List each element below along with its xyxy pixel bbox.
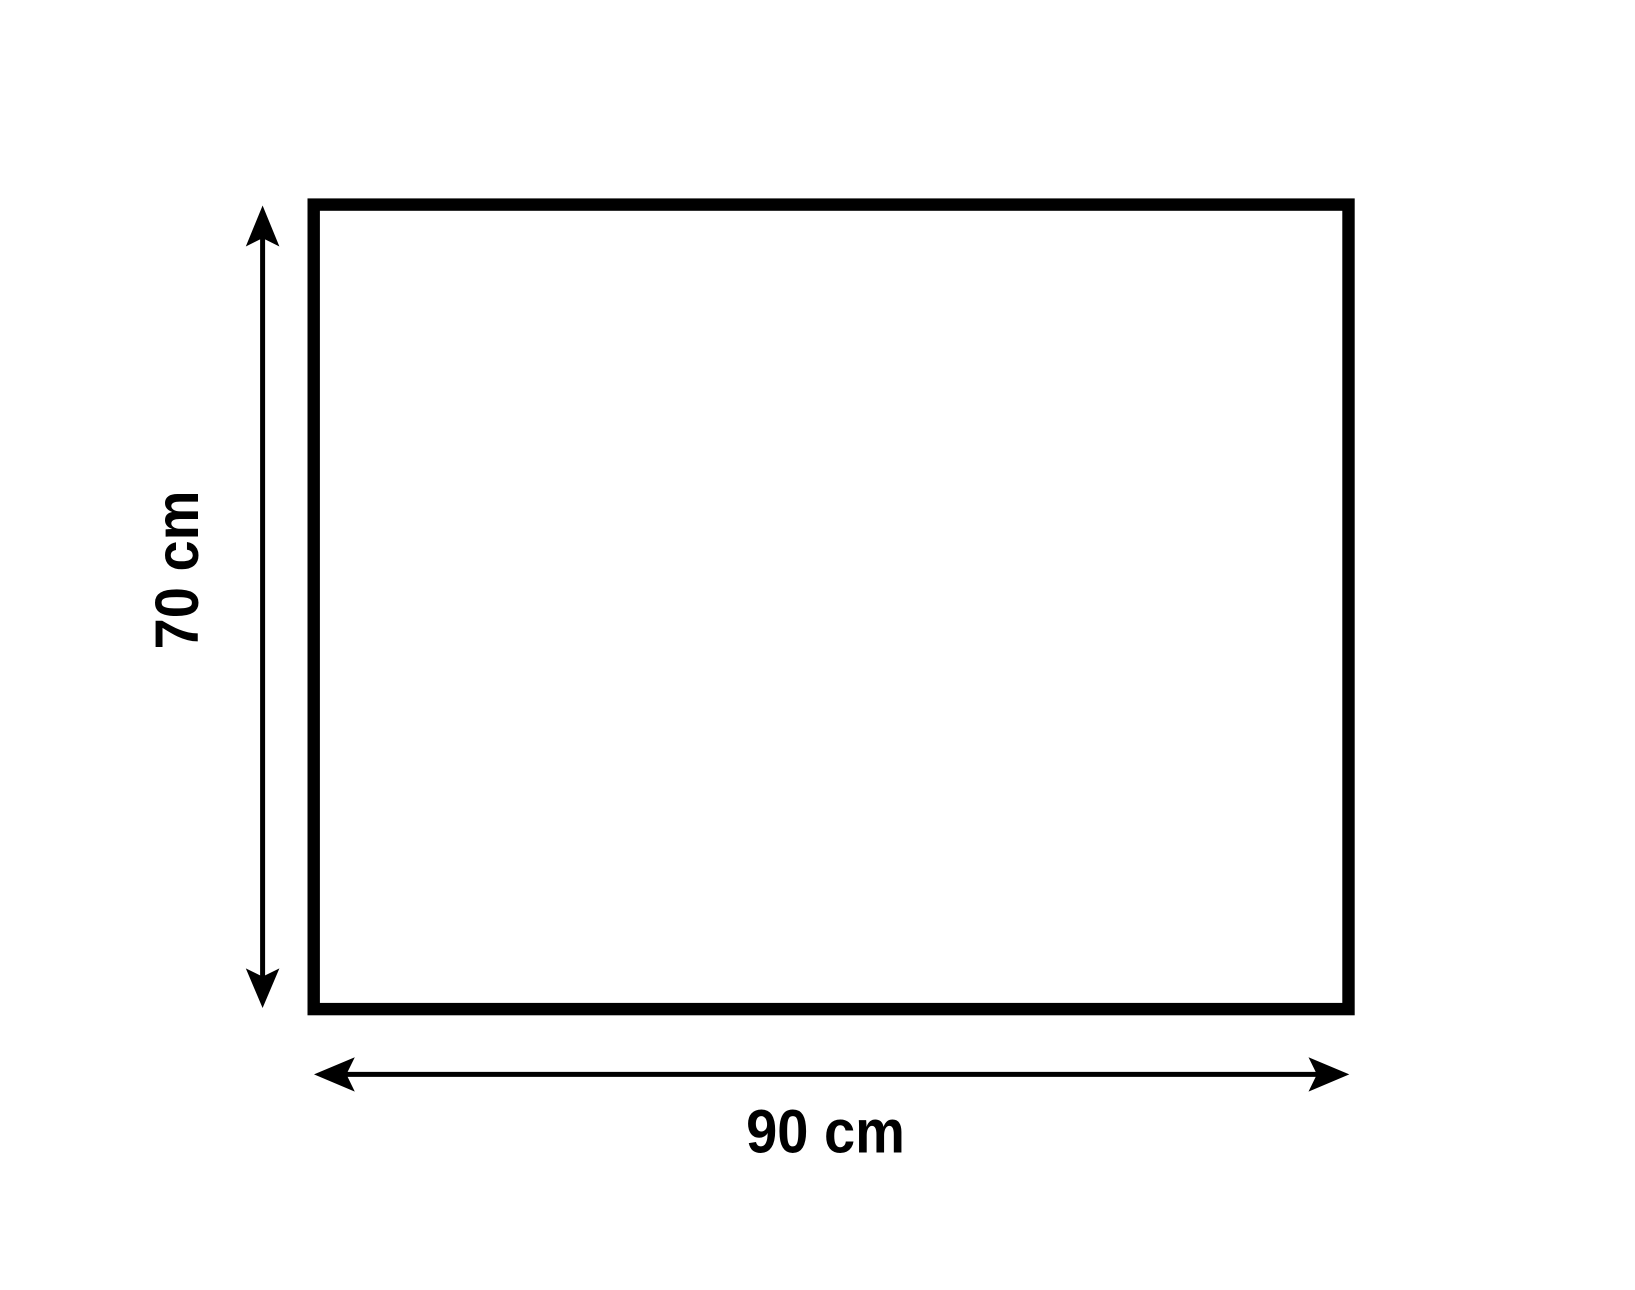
svg-text:70 cm: 70 cm <box>144 491 212 650</box>
svg-text:90 cm: 90 cm <box>746 1098 905 1166</box>
